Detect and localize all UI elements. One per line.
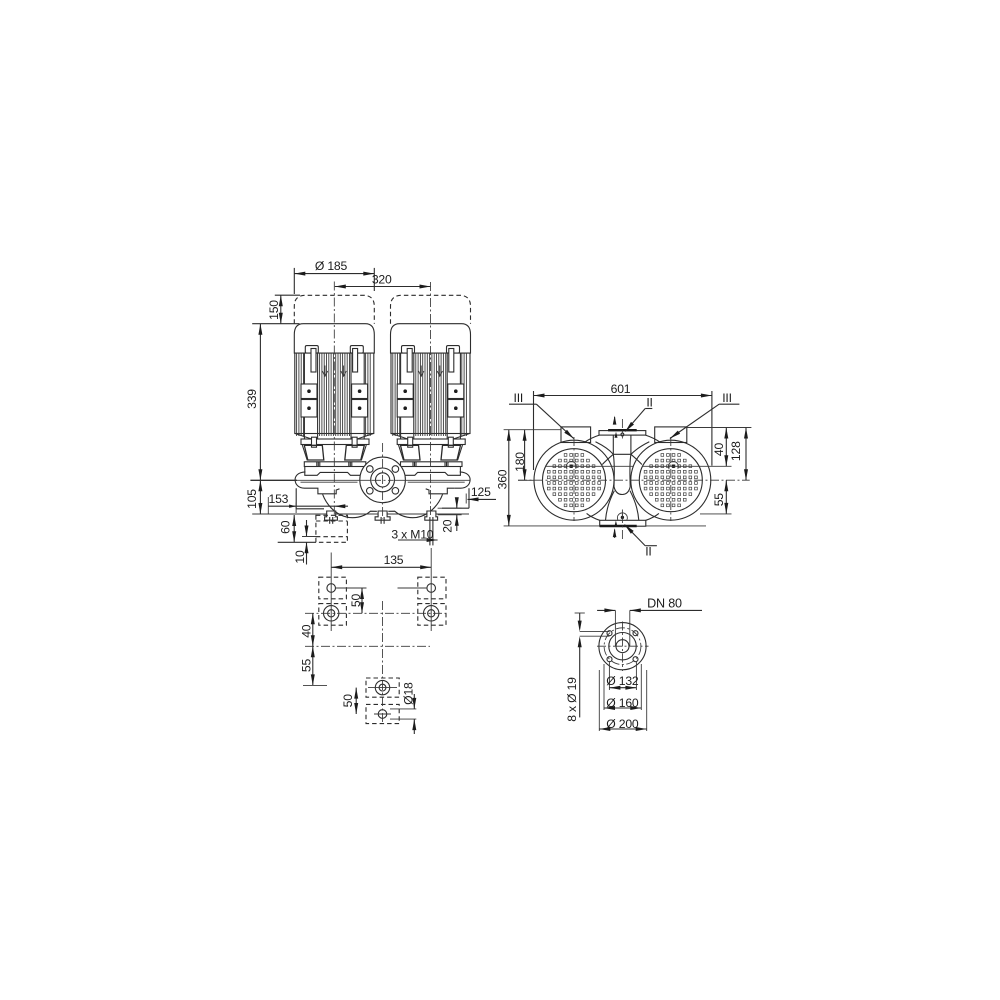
- svg-text:125: 125: [471, 485, 491, 499]
- svg-text:105: 105: [245, 489, 259, 509]
- svg-text:II: II: [646, 396, 652, 410]
- svg-text:50: 50: [349, 594, 363, 608]
- svg-text:153: 153: [269, 492, 289, 506]
- svg-text:339: 339: [245, 389, 259, 409]
- svg-text:III: III: [514, 391, 524, 405]
- svg-text:Ø 185: Ø 185: [315, 259, 348, 273]
- svg-text:180: 180: [513, 452, 527, 472]
- svg-text:55: 55: [300, 659, 314, 673]
- svg-text:8 x Ø 19: 8 x Ø 19: [565, 677, 579, 722]
- svg-text:360: 360: [495, 469, 509, 489]
- svg-text:60: 60: [279, 520, 293, 534]
- svg-text:10: 10: [293, 550, 307, 564]
- svg-text:150: 150: [267, 300, 281, 320]
- svg-text:Ø 132: Ø 132: [606, 674, 639, 688]
- svg-text:135: 135: [384, 553, 404, 567]
- svg-text:II: II: [645, 545, 651, 559]
- svg-text:601: 601: [611, 382, 631, 396]
- svg-text:55: 55: [712, 493, 726, 507]
- svg-text:320: 320: [372, 273, 392, 287]
- svg-text:40: 40: [712, 443, 726, 457]
- svg-text:128: 128: [729, 441, 743, 461]
- svg-text:50: 50: [341, 694, 355, 708]
- svg-text:40: 40: [300, 624, 314, 638]
- svg-text:Ø 200: Ø 200: [606, 717, 639, 731]
- svg-text:Ø18: Ø18: [402, 682, 416, 705]
- svg-text:III: III: [722, 391, 732, 405]
- svg-text:20: 20: [441, 519, 455, 533]
- svg-text:Ø 160: Ø 160: [606, 696, 639, 710]
- svg-text:DN 80: DN 80: [647, 597, 682, 611]
